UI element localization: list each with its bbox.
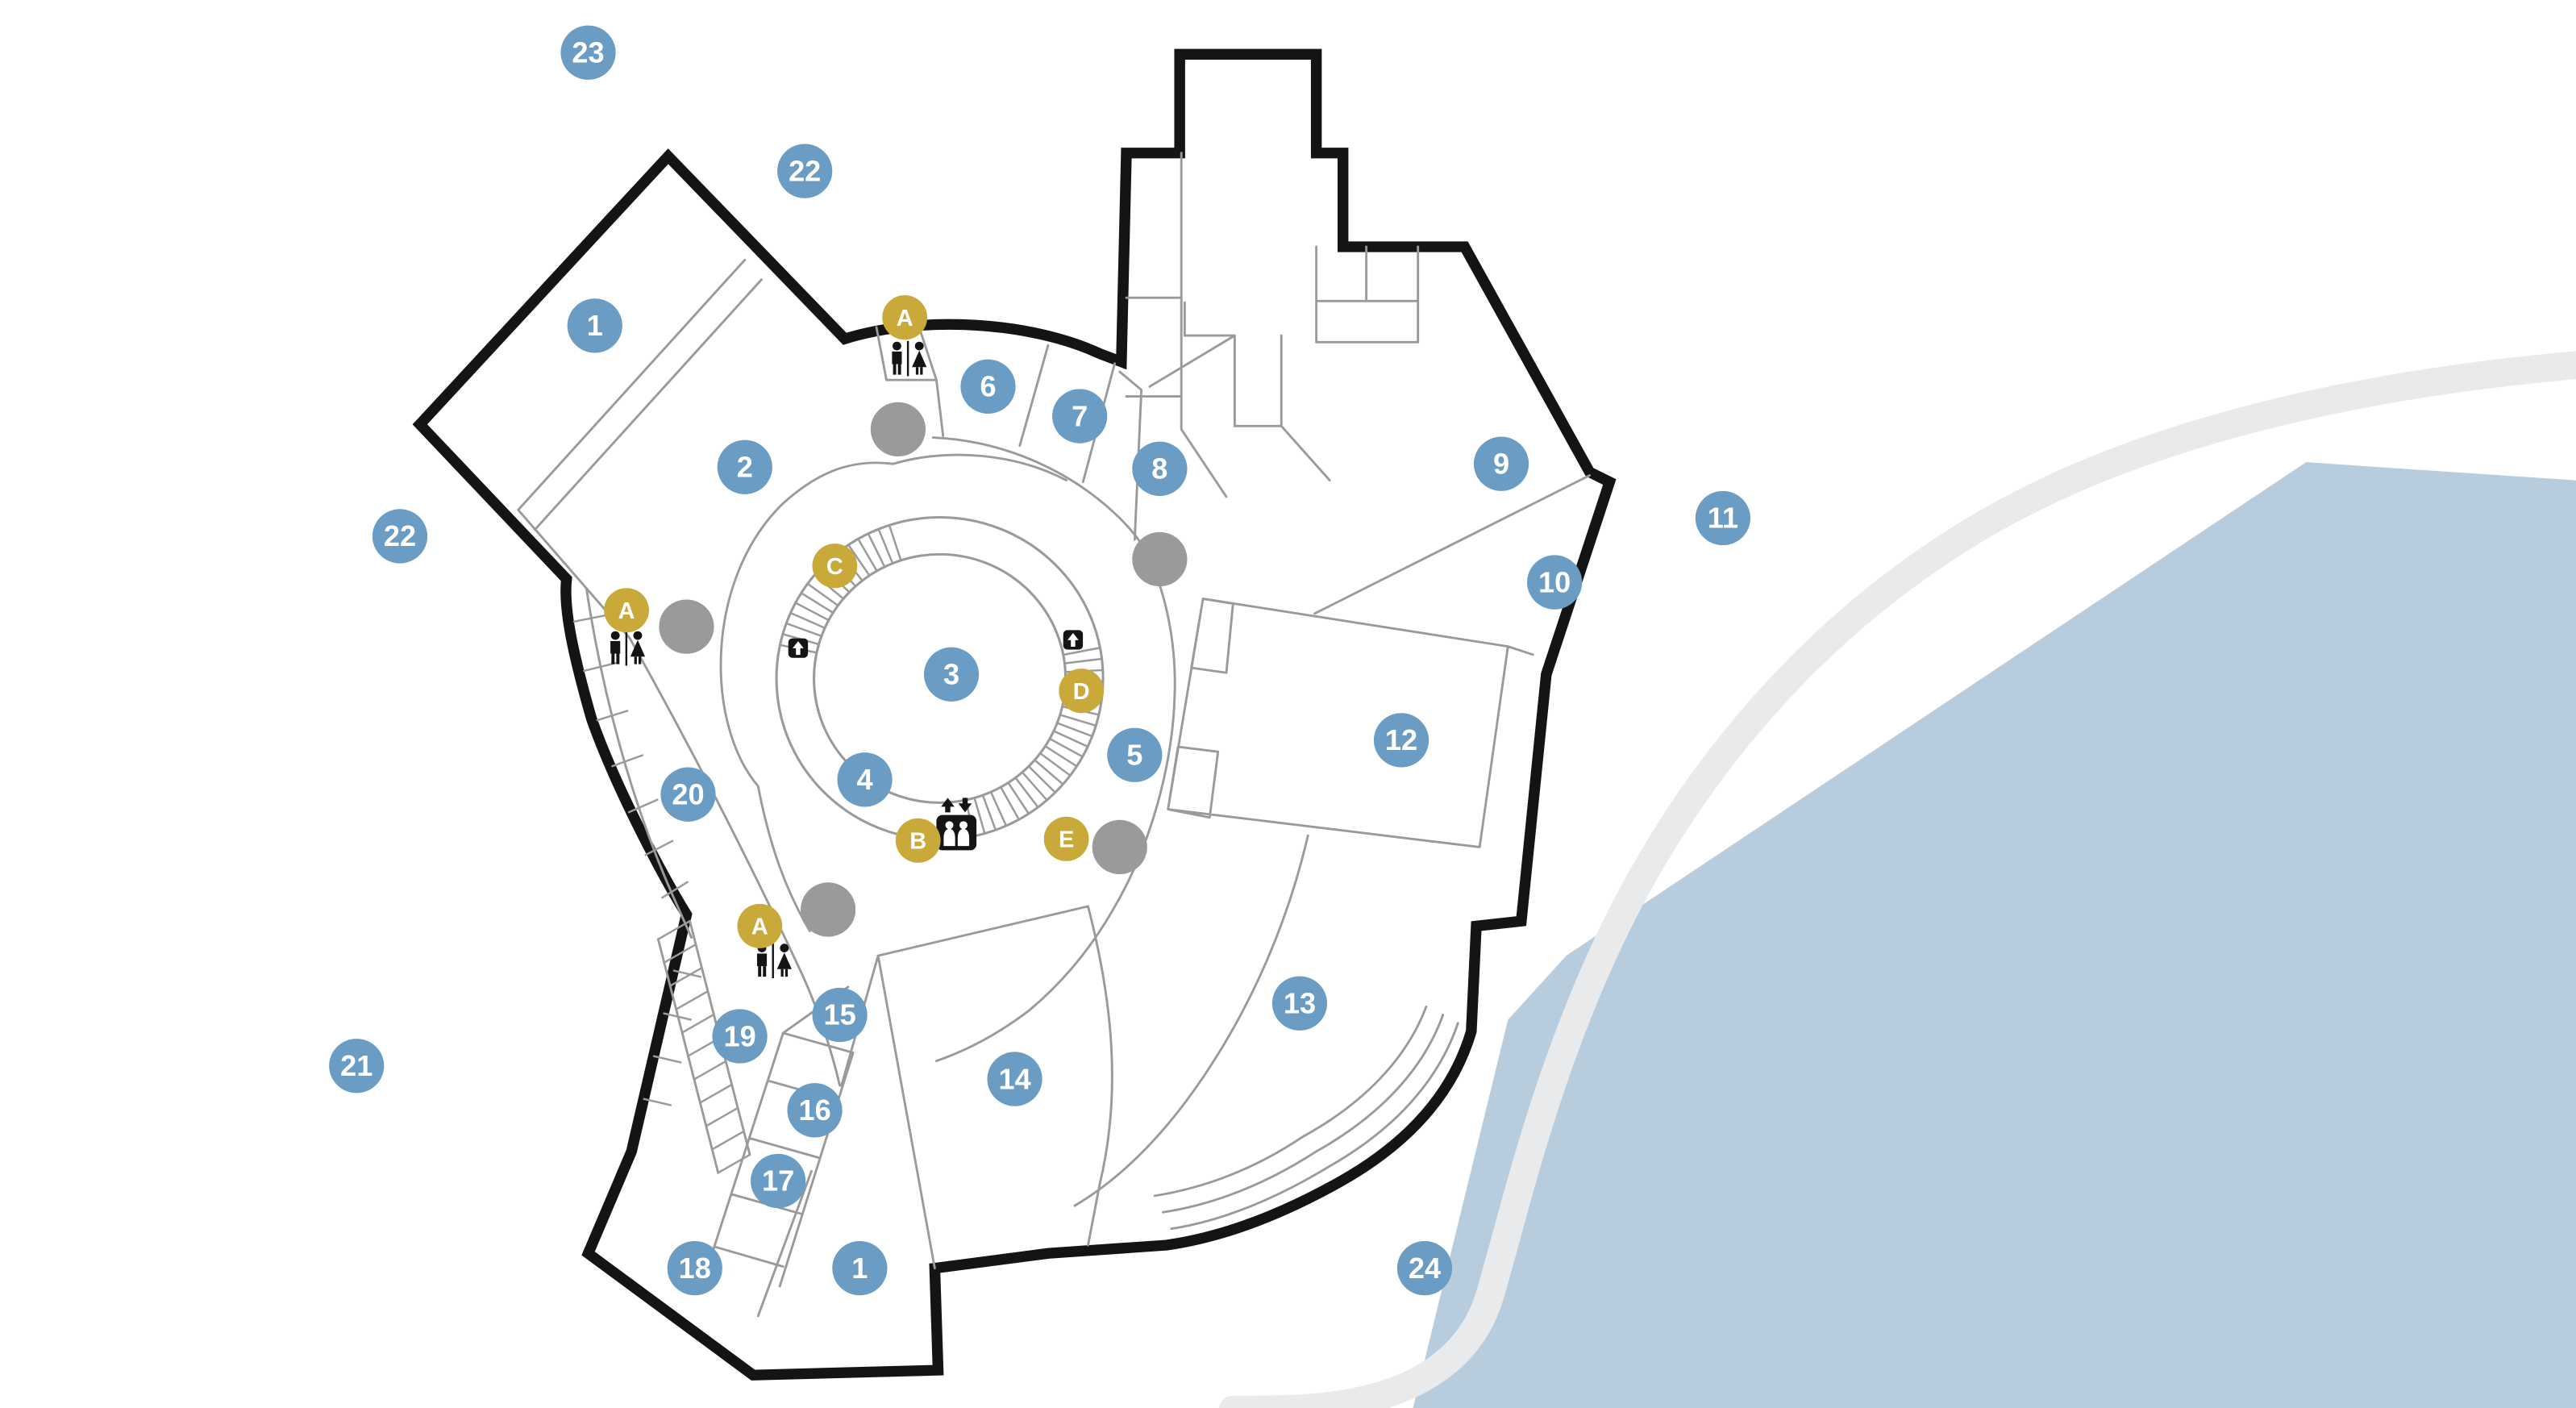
stairs-up-icon — [1063, 630, 1083, 649]
map-marker-label: A — [618, 598, 635, 624]
map-marker-label: A — [751, 914, 768, 940]
map-marker-15: 15 — [812, 988, 867, 1042]
map-marker-label: 22 — [384, 519, 416, 552]
map-marker-1: 1 — [832, 1241, 887, 1295]
map-marker-label: 16 — [798, 1093, 830, 1127]
map-marker-B: B — [896, 819, 941, 863]
map-marker-label: 18 — [679, 1252, 711, 1285]
map-marker-19: 19 — [712, 1009, 767, 1063]
map-marker-C: C — [812, 544, 857, 588]
map-marker-9: 9 — [1474, 437, 1529, 491]
map-marker-label: 24 — [1409, 1252, 1441, 1285]
map-marker-5: 5 — [1107, 728, 1162, 782]
column-dot — [1092, 820, 1147, 874]
map-marker-label: 23 — [572, 36, 604, 69]
map-marker-23: 23 — [560, 26, 615, 80]
column-dot — [1132, 532, 1187, 586]
map-marker-label: 5 — [1126, 739, 1142, 772]
map-marker-16: 16 — [787, 1083, 842, 1137]
map-marker-label: 4 — [857, 763, 873, 796]
map-marker-10: 10 — [1527, 555, 1582, 609]
building-outline — [420, 54, 1610, 1375]
floor-plan-map: 2322126789221110312542015192116171314181… — [0, 0, 2576, 1408]
map-marker-A: A — [737, 904, 782, 948]
map-marker-label: 12 — [1385, 723, 1417, 756]
map-marker-3: 3 — [924, 648, 979, 702]
map-marker-label: D — [1073, 679, 1090, 705]
map-marker-label: A — [897, 306, 913, 331]
map-marker-label: 20 — [672, 778, 704, 811]
map-marker-17: 17 — [751, 1154, 805, 1208]
map-marker-label: 3 — [943, 658, 959, 691]
map-marker-label: 10 — [1538, 566, 1571, 599]
map-marker-label: 1 — [851, 1252, 868, 1285]
map-marker-D: D — [1059, 669, 1104, 713]
map-marker-label: 8 — [1151, 452, 1167, 485]
map-marker-label: 6 — [980, 370, 996, 403]
map-marker-13: 13 — [1272, 977, 1327, 1031]
map-marker-7: 7 — [1052, 389, 1107, 443]
map-marker-label: 9 — [1493, 448, 1509, 481]
map-marker-label: 2 — [737, 451, 753, 484]
map-marker-8: 8 — [1132, 442, 1187, 496]
column-dot — [659, 599, 714, 653]
floor-plan-svg: 2322126789221110312542015192116171314181… — [0, 0, 2576, 1408]
map-marker-E: E — [1044, 817, 1089, 861]
map-marker-6: 6 — [960, 360, 1015, 414]
stairs-up-icon — [789, 639, 808, 658]
map-marker-1: 1 — [568, 298, 622, 352]
map-marker-label: C — [826, 554, 843, 580]
map-marker-label: 17 — [762, 1164, 794, 1198]
map-marker-11: 11 — [1696, 491, 1750, 545]
map-marker-label: 14 — [998, 1063, 1030, 1096]
column-dot — [801, 882, 855, 936]
map-marker-label: 19 — [723, 1019, 755, 1052]
column-dot — [871, 402, 926, 456]
map-marker-label: 7 — [1072, 400, 1088, 433]
map-marker-12: 12 — [1374, 713, 1429, 767]
map-marker-A: A — [882, 295, 927, 340]
map-marker-label: 13 — [1284, 987, 1316, 1020]
map-marker-21: 21 — [329, 1039, 384, 1093]
map-marker-20: 20 — [660, 768, 715, 822]
map-marker-A: A — [604, 588, 649, 632]
map-marker-label: 22 — [789, 155, 821, 188]
water-area — [1413, 462, 2576, 1408]
map-marker-label: 15 — [823, 998, 855, 1031]
map-marker-label: 11 — [1708, 502, 1738, 535]
map-marker-18: 18 — [668, 1241, 722, 1295]
map-marker-label: 21 — [340, 1049, 372, 1082]
map-marker-label: B — [909, 829, 926, 855]
map-marker-14: 14 — [987, 1052, 1042, 1106]
map-marker-label: E — [1059, 827, 1074, 853]
map-marker-2: 2 — [718, 440, 772, 494]
map-marker-22: 22 — [777, 144, 832, 198]
map-marker-22: 22 — [372, 509, 427, 563]
map-marker-label: 1 — [587, 309, 603, 342]
map-marker-4: 4 — [837, 752, 892, 806]
map-marker-24: 24 — [1397, 1241, 1452, 1295]
